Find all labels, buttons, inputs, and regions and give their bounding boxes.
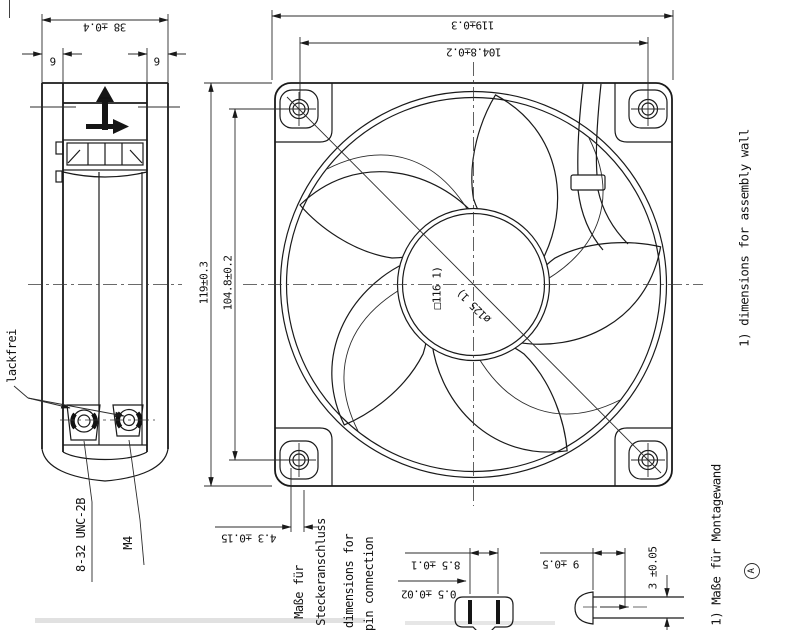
footnote-german: 1) Maße für Montagewand	[709, 464, 724, 626]
dim-pin-length-label: 9 ±0.5	[543, 558, 580, 571]
footnote-english: 1) dimensions for assembly wall	[737, 129, 752, 347]
lackfrei-label: lackfrei	[5, 329, 19, 383]
dim-flange-left-label: 6	[50, 55, 56, 68]
dim-depth-label: 38 ±0.4	[83, 21, 127, 34]
connector-caption-de-1: Maße für	[292, 565, 306, 619]
dim-pin-width-label: 3 ±0.05	[647, 547, 660, 590]
front-view	[28, 62, 703, 506]
square-cutout-label: □116 1)	[431, 267, 444, 310]
side-view	[42, 83, 168, 481]
dim-hole-spacing-h-label: 104.8±0.2	[446, 46, 501, 59]
fan-dimension-drawing: 38 ±0.4 6 6 119±0.3 104.8±0.2 119±0.3 10…	[0, 0, 787, 630]
centerlines	[28, 62, 703, 506]
revision-mark: A	[745, 564, 760, 579]
connector-caption-en-2: pin connection	[362, 537, 376, 630]
rivet-detail: 9 ±0.5 3 ±0.05	[540, 547, 684, 630]
dim-flange-right-label: 6	[154, 55, 160, 68]
dimensions-side-view: 38 ±0.4 6 6	[22, 14, 186, 83]
connector-caption-en-1: dimensions for	[342, 534, 356, 628]
pin-connector-detail: 8.5 ±0.1 0.5 ±0.02	[398, 548, 513, 630]
airflow-direction-arrow	[96, 86, 114, 130]
thread-labels: lackfrei 8-32 UNC-2B M4	[5, 329, 144, 582]
revision-letter: A	[747, 567, 757, 573]
thread-unc-label: 8-32 UNC-2B	[74, 498, 88, 572]
connector-caption-de-2: Steckeranschluss	[314, 518, 328, 626]
dim-width-outer-label: 119±0.3	[452, 19, 495, 32]
dim-hole-spacing-v-label: 104.8±0.2	[222, 255, 235, 310]
footnotes: 1) dimensions for assembly wall 1) Maße …	[709, 129, 760, 626]
dim-pin-thickness-label: 0.5 ±0.02	[401, 588, 456, 601]
connector-captions: 4.3 ±0.15 Maße für Steckeranschluss dime…	[215, 468, 376, 630]
technical-drawing-sheet: 38 ±0.4 6 6 119±0.3 104.8±0.2 119±0.3 10…	[0, 0, 787, 630]
dim-connector-offset-label: 4.3 ±0.15	[221, 532, 276, 545]
thread-m4-label: M4	[121, 536, 135, 550]
dim-height-outer-label: 119±0.3	[198, 262, 211, 305]
dim-pin-spacing-label: 8.5 ±0.1	[412, 559, 461, 572]
